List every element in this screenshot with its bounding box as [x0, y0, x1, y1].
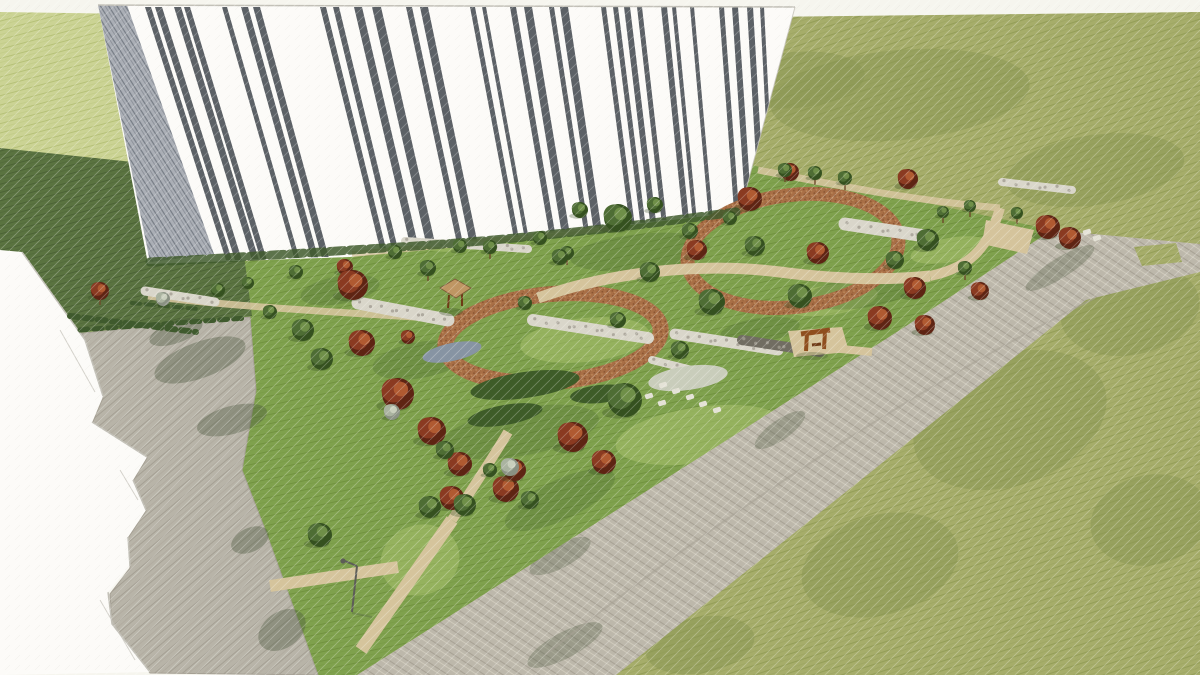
park-aerial-render — [0, 0, 1200, 675]
pencil-texture-overlay — [0, 0, 1200, 675]
landscape-render — [0, 0, 1200, 675]
